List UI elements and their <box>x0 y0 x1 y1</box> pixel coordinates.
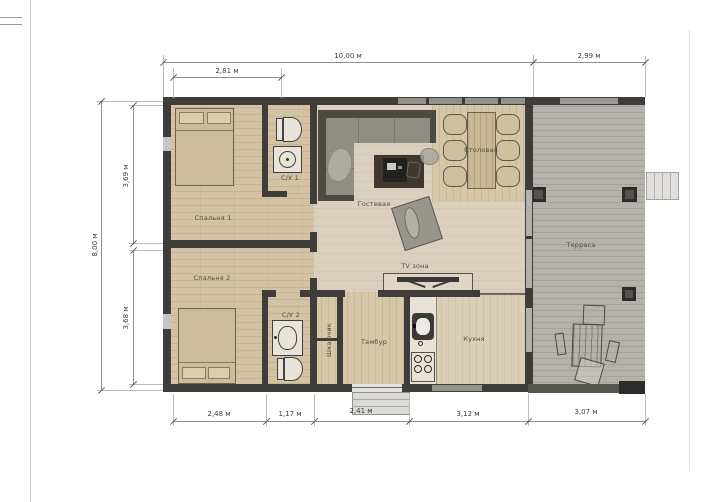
kitchen-sink-basin <box>416 318 430 335</box>
wall-bath1-bottom <box>262 191 287 197</box>
window-bottom-band <box>432 385 482 391</box>
dim-line-top-terrace <box>533 62 645 63</box>
label-kitchen: Кухня <box>463 335 484 343</box>
dim-left-bottom: 3,68 м <box>122 306 130 329</box>
sofa-cushion-line <box>358 118 359 143</box>
sofa-armrest <box>430 110 436 143</box>
burner <box>414 355 422 363</box>
dim-left-total: 8,00 м <box>91 233 99 256</box>
extension-line <box>97 101 163 102</box>
extension-line <box>281 68 282 98</box>
dim-line-left-bottom <box>133 250 134 384</box>
dining-chair <box>496 166 520 187</box>
coffee-table <box>383 158 407 182</box>
floor-plan: Спальня 1 Спальня 2 С/У 1 Гостевая Столо… <box>0 0 703 502</box>
window-mullion <box>498 98 501 104</box>
dining-chair <box>496 140 520 161</box>
laptop <box>387 163 396 170</box>
label-terrace: Терраса <box>566 241 595 249</box>
bed-1-fold <box>176 130 233 131</box>
terrace-post <box>622 187 637 202</box>
kitchen-knob <box>418 341 423 346</box>
dim-bottom-4: 3,12 м <box>456 410 479 418</box>
dining-chair <box>496 114 520 135</box>
dim-top-left: 2,81 м <box>215 67 238 75</box>
glazing-living-terrace <box>526 190 532 288</box>
dim-line-top-total <box>163 62 533 63</box>
glazing-kitchen-terrace <box>526 308 532 352</box>
wall-closet-right <box>337 290 343 388</box>
sink-2-basin <box>278 326 297 350</box>
wall-bath1-left <box>262 104 268 197</box>
table-item <box>398 166 402 169</box>
dining-chair <box>443 166 467 187</box>
window-left-2 <box>163 313 171 330</box>
bed-2-pillow <box>208 367 230 379</box>
label-tv-zone: TV зона <box>401 262 429 270</box>
page-tick <box>0 24 22 25</box>
page-tick <box>0 17 22 18</box>
sofa-back-top <box>322 110 434 118</box>
dim-top-total: 10,00 м <box>334 52 362 60</box>
sink-2-drain <box>274 336 277 339</box>
sofa-armrest <box>318 195 354 201</box>
extension-line <box>173 68 174 98</box>
label-living: Гостевая <box>358 200 391 208</box>
sofa-back-left <box>318 110 326 198</box>
kitchen-faucet <box>413 324 416 328</box>
label-dining: Столовая <box>464 146 498 154</box>
step-line <box>654 172 655 200</box>
dim-line-left-total <box>101 101 102 390</box>
label-vestibule: Тамбур <box>361 338 387 346</box>
window-mullion <box>462 98 465 104</box>
burner <box>424 355 432 363</box>
entry-door-leaf <box>352 387 402 388</box>
toilet-1-tank <box>276 118 283 141</box>
glazing-mullion <box>526 236 532 239</box>
plant-sketch <box>420 148 439 165</box>
dim-line-top-left <box>173 77 281 78</box>
dim-line-left-top <box>133 105 134 243</box>
step-line <box>662 172 663 200</box>
wall-kitchen-partition <box>404 297 410 384</box>
wall-bath2-left <box>262 290 268 388</box>
dim-bottom-5: 3,07 м <box>574 408 597 416</box>
bed-1-pillow <box>179 112 204 124</box>
opening-line-kitchen <box>480 293 525 295</box>
bed-1-pillow <box>207 112 231 124</box>
wall-core-vertical <box>310 104 317 204</box>
wall-bath1-bottom <box>310 191 317 197</box>
dim-bottom-3: 2,41 м <box>349 407 372 415</box>
dim-bottom-2: 1,17 м <box>278 410 301 418</box>
label-bedroom1: Спальня 1 <box>195 214 232 222</box>
label-bath1: С/У 1 <box>281 174 299 182</box>
wall-bedroom-divider <box>163 240 317 248</box>
terrace-bench <box>583 305 606 326</box>
porch-step-line <box>352 399 410 400</box>
dining-chair <box>443 114 467 135</box>
desk-chair-sketch <box>406 161 421 179</box>
step-line <box>670 172 671 200</box>
terrace-post <box>622 287 636 301</box>
frame-right-line <box>689 30 690 470</box>
terrace-top-rail <box>560 98 618 104</box>
terrace-corner-block <box>619 381 645 394</box>
burner <box>424 365 432 373</box>
window-mullion <box>426 98 429 104</box>
label-bedroom2: Спальня 2 <box>194 274 231 282</box>
extension-line <box>97 390 163 391</box>
frame-left-line <box>30 0 31 502</box>
label-bath2: С/У 2 <box>282 311 300 319</box>
entry-door-gap <box>352 384 402 392</box>
window-left-1 <box>163 136 171 152</box>
sofa-seat-top <box>322 118 434 143</box>
bed-2-fold <box>179 362 235 363</box>
label-closet: Шкафчик <box>325 323 333 357</box>
dim-bottom-1: 2,48 м <box>207 410 230 418</box>
terrace-post <box>531 187 546 202</box>
wall-lower-horizontal <box>378 290 480 297</box>
dim-top-terrace: 2,99 м <box>577 52 600 60</box>
sink-1-drain <box>286 158 289 161</box>
toilet-2-tank <box>277 358 284 380</box>
dim-left-top: 3,69 м <box>122 164 130 187</box>
bed-2-pillow <box>182 367 206 379</box>
sofa-cushion-line <box>394 118 395 143</box>
burner <box>414 365 422 373</box>
